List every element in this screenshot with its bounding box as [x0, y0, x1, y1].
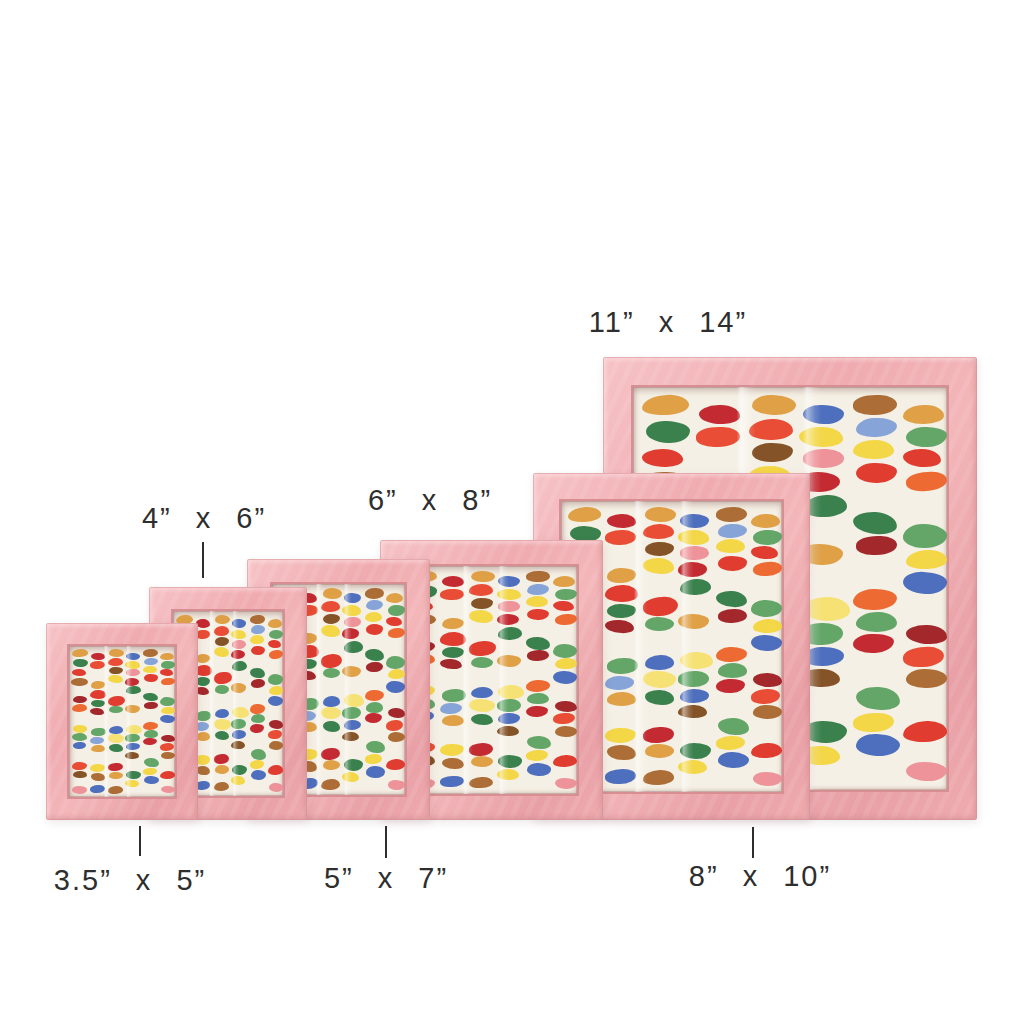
- paint-swatch: [269, 740, 283, 749]
- paint-swatch: [72, 762, 87, 770]
- artwork-3-5x5: [69, 646, 175, 797]
- paint-swatch: [749, 419, 793, 440]
- frame-size-comparison-image: 11” x 14” 6” x 8” 4” x 6” 3.5” x 5” 5” x…: [0, 0, 1024, 1024]
- paint-swatch: [645, 744, 674, 758]
- paint-swatch: [645, 541, 674, 556]
- paint-swatch: [442, 647, 464, 658]
- paint-swatch: [526, 680, 550, 693]
- paint-swatch: [90, 661, 105, 669]
- paint-swatch: [442, 618, 465, 630]
- paint-swatch: [109, 706, 123, 714]
- paint-swatch: [496, 699, 520, 712]
- paint-swatch: [321, 747, 340, 759]
- paint-swatch: [903, 571, 947, 595]
- paint-swatch: [161, 735, 175, 742]
- paint-swatch: [906, 550, 947, 570]
- paint-swatch: [269, 783, 283, 792]
- paint-swatch: [555, 700, 577, 711]
- paint-swatch: [161, 661, 175, 669]
- size-label-3-5x5: 3.5” x 5”: [54, 864, 206, 897]
- paint-swatch: [526, 750, 548, 761]
- paint-swatch: [321, 779, 340, 790]
- paint-swatch: [555, 658, 577, 669]
- paint-swatch: [365, 689, 384, 701]
- paint-swatch: [322, 588, 341, 599]
- paint-swatch: [903, 523, 947, 548]
- paint-swatch: [680, 688, 709, 702]
- paint-swatch: [642, 671, 676, 689]
- paint-swatch: [471, 570, 495, 582]
- paint-swatch: [753, 673, 782, 687]
- paint-swatch: [72, 649, 88, 657]
- paint-swatch: [91, 773, 105, 781]
- paint-swatch: [342, 605, 361, 616]
- paint-swatch: [344, 616, 362, 627]
- paint-swatch: [642, 770, 674, 786]
- size-label-6x8: 6” x 8”: [368, 484, 492, 517]
- paint-swatch: [497, 655, 521, 667]
- paint-swatch: [678, 704, 707, 718]
- paint-swatch: [752, 394, 797, 416]
- paint-swatch: [91, 699, 105, 706]
- paint-swatch: [527, 609, 549, 621]
- paint-swatch: [109, 744, 123, 752]
- paint-swatch: [903, 449, 941, 468]
- paint-swatch: [126, 743, 140, 750]
- paint-swatch: [267, 674, 283, 685]
- paint-swatch: [643, 524, 674, 539]
- paint-swatch: [553, 576, 575, 587]
- paint-swatch: [388, 605, 405, 616]
- paint-swatch: [856, 687, 901, 712]
- paint-swatch: [143, 692, 158, 701]
- paint-swatch: [605, 620, 634, 634]
- paint-swatch: [366, 624, 383, 635]
- paint-swatch: [143, 768, 157, 775]
- paint-swatch: [497, 589, 521, 601]
- paint-swatch: [642, 596, 678, 616]
- paint-swatch: [388, 780, 405, 791]
- paint-swatch: [752, 443, 793, 464]
- paint-swatch: [643, 726, 674, 743]
- paint-swatch: [91, 653, 105, 661]
- paint-swatch: [125, 661, 140, 669]
- paint-swatch: [607, 658, 638, 674]
- size-label-8x10: 8” x 10”: [689, 860, 831, 893]
- paint-swatch: [109, 726, 123, 734]
- paint-swatch: [232, 619, 247, 628]
- paint-swatch: [196, 732, 210, 741]
- paint-swatch: [344, 720, 361, 730]
- paint-swatch: [906, 761, 947, 781]
- paint-swatch: [751, 546, 778, 560]
- paint-swatch: [553, 713, 576, 725]
- paint-swatch: [440, 589, 464, 601]
- paint-swatch: [366, 702, 383, 713]
- paint-swatch: [852, 511, 897, 535]
- paint-swatch: [109, 772, 123, 779]
- paint-swatch: [386, 593, 403, 603]
- paint-swatch: [856, 536, 897, 556]
- paint-swatch: [853, 395, 897, 416]
- paint-swatch: [442, 689, 466, 702]
- paint-swatch: [108, 695, 125, 706]
- paint-swatch: [322, 613, 340, 624]
- paint-swatch: [440, 743, 464, 756]
- paint-swatch: [440, 702, 463, 714]
- paint-swatch: [469, 610, 493, 623]
- paint-swatch: [696, 427, 740, 448]
- paint-swatch: [126, 686, 141, 695]
- paint-swatch: [231, 719, 247, 730]
- paint-swatch: [126, 724, 142, 734]
- paint-swatch: [802, 449, 844, 470]
- paint-swatch: [269, 650, 283, 659]
- paint-swatch: [386, 617, 402, 627]
- paint-swatch: [852, 588, 897, 610]
- paint-swatch: [553, 755, 577, 768]
- paint-swatch: [553, 643, 577, 657]
- paint-swatch: [498, 713, 520, 724]
- paint-swatch: [498, 684, 524, 699]
- paint-swatch: [605, 675, 634, 690]
- paint-swatch: [716, 507, 747, 522]
- paint-swatch: [852, 633, 894, 654]
- paint-swatch: [214, 647, 230, 657]
- paint-swatch: [497, 614, 519, 626]
- paint-swatch: [321, 625, 340, 637]
- paint-swatch: [161, 707, 175, 714]
- paint-swatch: [442, 757, 465, 769]
- paint-swatch: [108, 675, 123, 684]
- paint-swatch: [645, 655, 674, 670]
- paint-swatch: [161, 677, 175, 685]
- paint-swatch: [214, 754, 230, 765]
- paint-swatch: [440, 632, 466, 646]
- paint-swatch: [386, 655, 405, 668]
- paint-swatch: [678, 671, 709, 688]
- paint-swatch: [108, 763, 123, 772]
- paint-swatch: [718, 523, 747, 538]
- paint-swatch: [144, 758, 159, 767]
- paint-swatch: [215, 709, 229, 718]
- paint-swatch: [125, 705, 140, 713]
- paint-swatch: [751, 742, 782, 758]
- paint-swatch: [144, 776, 159, 785]
- paint-swatch: [469, 641, 497, 657]
- size-label-11x14: 11” x 14”: [589, 306, 747, 339]
- paint-swatch: [553, 601, 574, 612]
- paint-swatch: [213, 719, 230, 730]
- paint-swatch: [214, 626, 229, 636]
- paint-swatch: [160, 697, 175, 706]
- paint-swatch: [342, 731, 360, 741]
- paint-swatch: [72, 669, 86, 676]
- paint-swatch: [321, 601, 340, 612]
- paint-swatch: [232, 639, 247, 648]
- paint-swatch: [442, 576, 465, 588]
- pointer-line-4x6: [202, 542, 204, 578]
- paint-swatch: [718, 609, 747, 623]
- paint-swatch: [251, 770, 267, 781]
- paint-swatch: [231, 683, 247, 693]
- paint-swatch: [232, 730, 246, 739]
- paint-swatch: [527, 583, 550, 595]
- paint-swatch: [366, 600, 384, 611]
- paint-swatch: [386, 720, 404, 731]
- paint-swatch: [125, 678, 139, 686]
- paint-swatch: [251, 714, 265, 723]
- paint-swatch: [267, 696, 283, 707]
- paint-swatch: [73, 724, 87, 732]
- paint-swatch: [555, 778, 577, 790]
- paint-swatch: [753, 530, 782, 545]
- paint-swatch: [645, 690, 674, 705]
- paint-swatch: [471, 598, 494, 610]
- paint-swatch: [144, 702, 158, 709]
- paint-swatch: [160, 715, 175, 724]
- paint-swatch: [250, 724, 265, 733]
- paint-swatch: [126, 669, 140, 677]
- paint-swatch: [231, 740, 246, 749]
- paint-swatch: [231, 775, 246, 784]
- paint-swatch: [344, 593, 362, 604]
- paint-swatch: [753, 704, 782, 718]
- paint-swatch: [321, 653, 343, 668]
- paint-swatch: [555, 725, 577, 736]
- paint-swatch: [342, 707, 361, 719]
- paint-swatch: [715, 591, 747, 608]
- paint-swatch: [344, 693, 364, 707]
- paint-swatch: [322, 668, 340, 679]
- paint-swatch: [365, 713, 383, 724]
- paint-swatch: [718, 751, 750, 768]
- paint-swatch: [527, 762, 551, 776]
- pointer-line-8x10: [752, 827, 754, 858]
- paint-swatch: [365, 754, 382, 764]
- paint-swatch: [751, 688, 780, 703]
- paint-swatch: [526, 596, 548, 608]
- paint-swatch: [498, 576, 520, 588]
- paint-swatch: [196, 677, 210, 686]
- paint-swatch: [196, 766, 211, 776]
- paint-swatch: [642, 394, 690, 416]
- paint-swatch: [160, 653, 174, 660]
- paint-swatch: [269, 629, 283, 639]
- paint-swatch: [753, 771, 782, 786]
- paint-swatch: [91, 680, 105, 688]
- paint-swatch: [143, 649, 158, 657]
- paint-swatch: [160, 771, 175, 779]
- paint-swatch: [751, 634, 782, 651]
- paint-swatch: [643, 557, 674, 574]
- paint-swatch: [718, 555, 747, 570]
- paint-swatch: [143, 666, 157, 674]
- paint-swatch: [680, 514, 709, 529]
- paint-swatch: [250, 760, 264, 769]
- paint-swatch: [469, 699, 495, 713]
- paint-swatch: [109, 667, 123, 675]
- paint-swatch: [144, 657, 158, 665]
- paint-swatch: [555, 613, 577, 625]
- paint-swatch: [386, 759, 405, 771]
- paint-swatch: [906, 427, 947, 448]
- paint-swatch: [471, 714, 493, 726]
- frame-3-5x5: [46, 623, 198, 820]
- paint-swatch: [567, 506, 601, 522]
- paint-swatch: [715, 646, 746, 662]
- paint-swatch: [196, 711, 211, 721]
- paint-swatch: [607, 745, 636, 760]
- paint-swatch: [144, 674, 158, 682]
- paint-swatch: [250, 703, 266, 713]
- paint-swatch: [605, 530, 636, 545]
- paint-swatch: [251, 646, 265, 655]
- paint-swatch: [108, 658, 123, 666]
- paint-swatch: [751, 600, 782, 618]
- paint-swatch: [856, 462, 897, 483]
- paint-swatch: [72, 704, 87, 712]
- paint-swatch: [268, 640, 281, 649]
- paint-swatch: [440, 659, 463, 670]
- paint-swatch: [161, 786, 175, 794]
- paint-swatch: [269, 720, 283, 729]
- paint-swatch: [753, 619, 782, 633]
- paint-swatch: [143, 738, 157, 746]
- paint-swatch: [90, 690, 106, 699]
- paint-swatch: [496, 725, 519, 736]
- paint-swatch: [678, 530, 709, 545]
- paint-swatch: [442, 715, 464, 726]
- paint-swatch: [753, 561, 782, 576]
- paint-swatch: [196, 619, 211, 628]
- paint-swatch: [469, 776, 493, 788]
- paint-swatch: [251, 749, 267, 760]
- paint-swatch: [553, 670, 577, 684]
- paint-swatch: [73, 696, 87, 703]
- paint-swatch: [680, 652, 714, 671]
- paint-swatch: [527, 736, 551, 750]
- paint-swatch: [715, 678, 744, 693]
- paint-swatch: [232, 764, 247, 774]
- paint-swatch: [73, 742, 86, 749]
- paint-swatch: [386, 681, 405, 693]
- paint-swatch: [802, 405, 843, 425]
- paint-swatch: [232, 707, 249, 719]
- paint-swatch: [251, 679, 265, 688]
- paint-swatch: [90, 736, 104, 744]
- paint-swatch: [143, 721, 158, 729]
- paint-swatch: [903, 721, 947, 744]
- paint-swatch: [366, 662, 383, 672]
- paint-swatch: [73, 659, 88, 668]
- paint-swatch: [267, 730, 282, 740]
- paint-swatch: [607, 567, 636, 583]
- paint-swatch: [108, 785, 123, 793]
- paint-swatch: [232, 660, 248, 671]
- paint-swatch: [716, 539, 745, 554]
- paint-swatch: [853, 712, 894, 732]
- paint-swatch: [72, 786, 87, 794]
- paint-swatch: [215, 685, 230, 694]
- paint-swatch: [342, 772, 360, 783]
- paint-swatch: [469, 742, 493, 755]
- paint-swatch: [125, 780, 139, 788]
- paint-swatch: [645, 421, 690, 444]
- paint-swatch: [496, 769, 519, 781]
- paint-swatch: [321, 707, 341, 720]
- paint-swatch: [73, 771, 87, 779]
- paint-swatch: [680, 545, 709, 560]
- paint-swatch: [498, 755, 522, 768]
- paint-swatch: [903, 405, 944, 425]
- paint-swatch: [678, 562, 707, 577]
- paint-swatch: [471, 657, 493, 669]
- paint-swatch: [322, 721, 339, 732]
- paint-swatch: [680, 742, 711, 758]
- paint-swatch: [605, 727, 637, 743]
- paint-swatch: [365, 612, 383, 623]
- paint-swatch: [160, 743, 174, 751]
- paint-swatch: [269, 686, 283, 695]
- paint-swatch: [90, 785, 105, 793]
- paint-swatch: [215, 731, 229, 740]
- artwork-6x8: [406, 566, 577, 794]
- paint-swatch: [215, 765, 229, 774]
- paint-swatch: [718, 717, 749, 735]
- paint-swatch: [72, 733, 87, 741]
- paint-swatch: [91, 745, 105, 752]
- paint-swatch: [642, 449, 683, 468]
- paint-swatch: [471, 687, 493, 699]
- paint-swatch: [322, 696, 339, 707]
- paint-swatch: [344, 759, 363, 771]
- paint-swatch: [718, 663, 747, 678]
- paint-swatch: [125, 751, 139, 758]
- paint-swatch: [268, 619, 282, 628]
- size-label-4x6: 4” x 6”: [142, 502, 266, 535]
- paint-swatch: [126, 653, 140, 661]
- paint-swatch: [645, 506, 677, 522]
- paint-swatch: [125, 734, 140, 743]
- paint-swatch: [213, 782, 229, 792]
- paint-swatch: [250, 635, 265, 644]
- paint-swatch: [607, 604, 636, 618]
- paint-swatch: [440, 776, 464, 788]
- paint-swatch: [525, 705, 548, 717]
- paint-swatch: [215, 637, 230, 646]
- paint-swatch: [344, 640, 363, 652]
- paint-swatch: [388, 732, 405, 742]
- paint-swatch: [906, 625, 947, 645]
- paint-swatch: [144, 730, 158, 738]
- paint-swatch: [751, 514, 780, 528]
- paint-swatch: [607, 691, 636, 705]
- paint-swatch: [498, 627, 522, 640]
- paint-swatch: [605, 585, 639, 603]
- paint-swatch: [71, 677, 88, 685]
- paint-swatch: [161, 752, 175, 759]
- paint-swatch: [215, 614, 231, 624]
- paint-swatch: [471, 756, 493, 767]
- paint-swatch: [607, 514, 636, 529]
- pointer-line-3-5x5: [139, 826, 141, 856]
- paint-swatch: [90, 708, 104, 715]
- paint-swatch: [799, 427, 843, 448]
- paint-swatch: [342, 666, 361, 677]
- paint-swatch: [342, 628, 359, 639]
- paint-swatch: [109, 649, 124, 657]
